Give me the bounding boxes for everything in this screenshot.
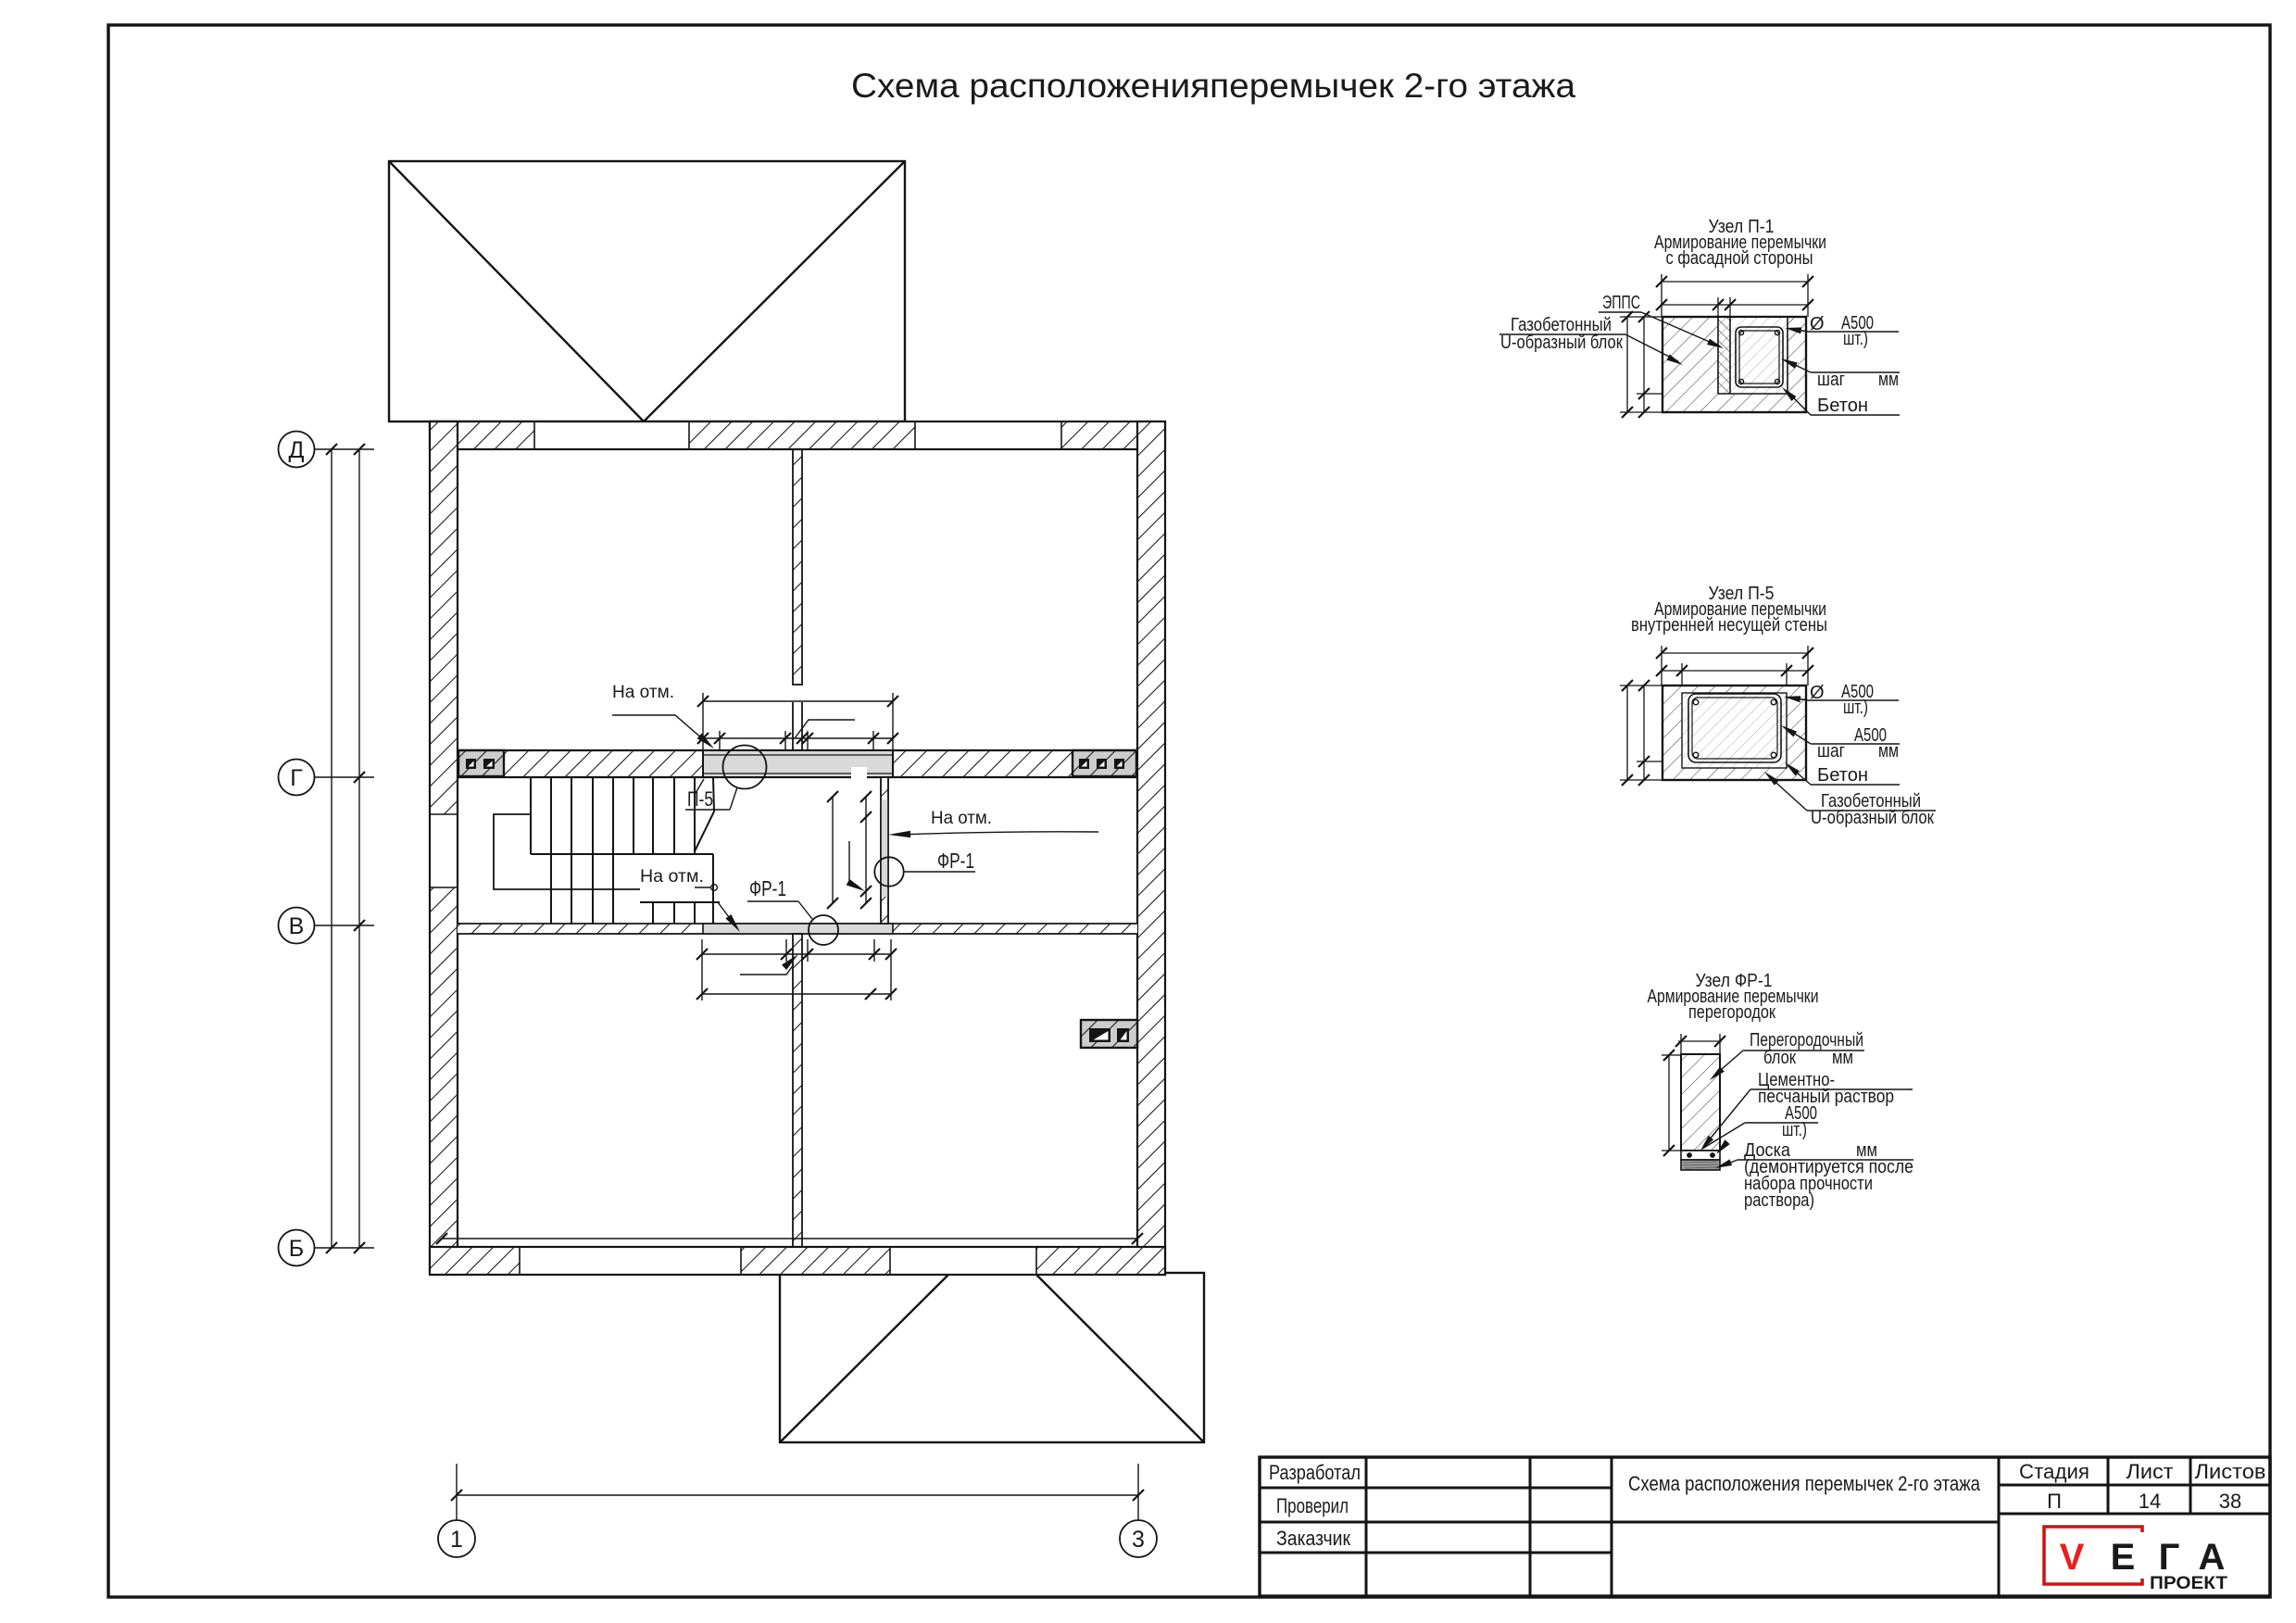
svg-text:мм: мм — [1832, 1048, 1853, 1068]
svg-text:П: П — [2047, 1490, 2062, 1513]
svg-text:Разработал: Разработал — [1269, 1461, 1361, 1484]
svg-text:3: 3 — [1132, 1527, 1145, 1553]
svg-text:Схема расположенияперемычек 2-: Схема расположенияперемычек 2-го этажа — [851, 67, 1575, 105]
svg-text:П-5: П-5 — [687, 787, 713, 811]
svg-text:раствора): раствора) — [1744, 1190, 1814, 1211]
svg-text:В: В — [289, 913, 305, 939]
svg-text:Стадия: Стадия — [2019, 1460, 2089, 1483]
svg-text:Проверил: Проверил — [1276, 1494, 1349, 1517]
svg-text:Бетон: Бетон — [1817, 765, 1868, 786]
svg-text:мм: мм — [1878, 741, 1899, 761]
svg-text:ПРОЕКТ: ПРОЕКТ — [2150, 1574, 2227, 1593]
svg-text:блок: блок — [1763, 1048, 1796, 1068]
svg-text:Г: Г — [2159, 1537, 2180, 1578]
svg-text:ЭППС: ЭППС — [1602, 293, 1640, 313]
svg-text:1: 1 — [450, 1527, 463, 1553]
svg-text:шт.): шт.) — [1843, 329, 1868, 349]
svg-text:Листов: Листов — [2195, 1460, 2266, 1483]
svg-text:ФР-1: ФР-1 — [749, 876, 786, 900]
svg-text:шт.): шт.) — [1843, 698, 1868, 718]
svg-text:с фасадной стороны: с фасадной стороны — [1666, 248, 1813, 269]
svg-text:На отм.: На отм. — [640, 867, 704, 887]
svg-text:шт.): шт.) — [1782, 1120, 1807, 1140]
svg-text:Лист: Лист — [2127, 1460, 2174, 1483]
svg-text:На отм.: На отм. — [931, 809, 992, 828]
svg-text:38: 38 — [2219, 1490, 2241, 1513]
svg-text:Г: Г — [290, 765, 303, 791]
svg-text:Д: Д — [289, 437, 305, 463]
svg-text:ФР-1: ФР-1 — [937, 849, 974, 873]
svg-text:U-образный блок: U-образный блок — [1811, 808, 1934, 828]
svg-text:Схема расположения перемычек 2: Схема расположения перемычек 2-го этажа — [1628, 1472, 1981, 1495]
svg-text:Б: Б — [289, 1236, 304, 1262]
svg-text:песчаный раствор: песчаный раствор — [1758, 1087, 1894, 1107]
svg-text:Бетон: Бетон — [1817, 396, 1868, 416]
svg-text:14: 14 — [2139, 1490, 2161, 1513]
svg-text:шаг: шаг — [1817, 370, 1845, 390]
svg-text:На отм.: На отм. — [612, 683, 674, 702]
svg-text:внутренней несущей стены: внутренней несущей стены — [1631, 615, 1827, 635]
svg-text:V: V — [2060, 1537, 2085, 1578]
svg-text:Заказчик: Заказчик — [1276, 1527, 1350, 1550]
svg-text:мм: мм — [1878, 370, 1899, 390]
svg-text:Е: Е — [2111, 1537, 2136, 1578]
svg-text:А: А — [2199, 1537, 2226, 1578]
svg-text:шаг: шаг — [1817, 741, 1845, 761]
svg-text:перегородок: перегородок — [1688, 1002, 1775, 1023]
svg-text:U-образный блок: U-образный блок — [1500, 333, 1623, 353]
